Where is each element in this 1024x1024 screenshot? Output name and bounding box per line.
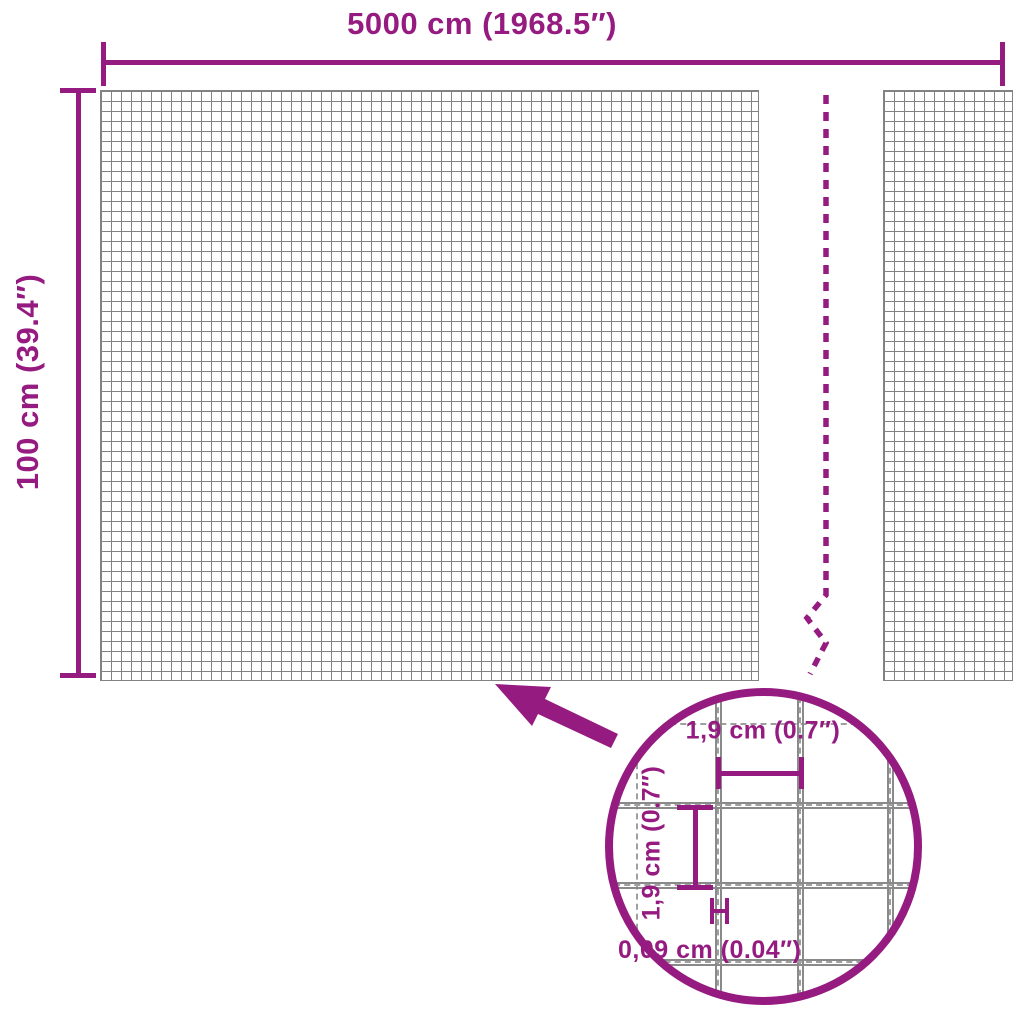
wire-thickness-label: 0,09 cm (0.04″)	[618, 936, 801, 965]
detail-width-measure-tick-left	[716, 757, 721, 789]
detail-width-measure-line	[718, 771, 801, 776]
detail-width-measure-tick-right	[799, 757, 804, 789]
width-dimension-line	[103, 60, 1003, 65]
width-dimension-tick-right	[1000, 42, 1005, 86]
width-dimension-tick-left	[101, 42, 106, 86]
detail-height-measure-line	[693, 807, 698, 887]
width-dimension-label: 5000 cm (1968.5″)	[347, 6, 617, 42]
wire-thickness-measure-bridge	[712, 909, 727, 913]
detail-height-label: 1,9 cm (0.7″)	[638, 766, 667, 921]
detail-height-measure-tick-bottom	[677, 885, 713, 890]
detail-height-measure-tick-top	[677, 805, 713, 810]
height-dimension-tick-bottom	[60, 673, 96, 678]
break-line	[807, 95, 826, 674]
mesh-panel-main	[100, 90, 759, 681]
arrow-icon	[495, 684, 618, 748]
height-dimension-label: 100 cm (39.4″)	[10, 274, 46, 491]
height-dimension-tick-top	[60, 88, 96, 93]
product-dimension-diagram: 5000 cm (1968.5″) 100 cm (39.4″) 1,9 cm …	[0, 0, 1024, 1024]
mesh-panel-continuation	[883, 90, 1013, 681]
height-dimension-line	[76, 90, 81, 677]
detail-width-label: 1,9 cm (0.7″)	[686, 717, 841, 746]
